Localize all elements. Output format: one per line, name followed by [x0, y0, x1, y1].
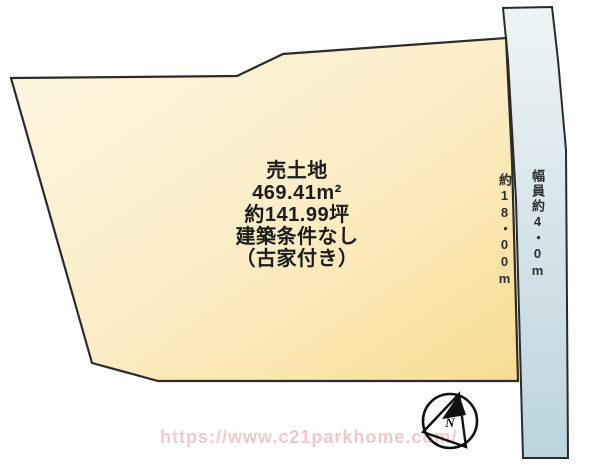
plot-info-label: 売土地 469.41m² 約141.99坪 建築条件なし （古家付き） — [177, 160, 417, 270]
compass-north-letter: N — [444, 415, 455, 430]
plot-area-tsubo: 約141.99坪 — [177, 204, 417, 226]
site-plan-canvas: https://www.c21parkhome.com/ N 売土地 469.4… — [0, 0, 600, 475]
plot-title: 売土地 — [177, 160, 417, 182]
plot-note: （古家付き） — [177, 248, 417, 270]
road-width-dimension-label: 幅員約4・0m — [528, 169, 547, 280]
plot-building-condition: 建築条件なし — [177, 226, 417, 248]
plot-area-m2: 469.41m² — [177, 182, 417, 204]
compass-north-icon: N — [423, 394, 477, 448]
plot-depth-dimension-label: 約18・00m — [495, 173, 514, 288]
